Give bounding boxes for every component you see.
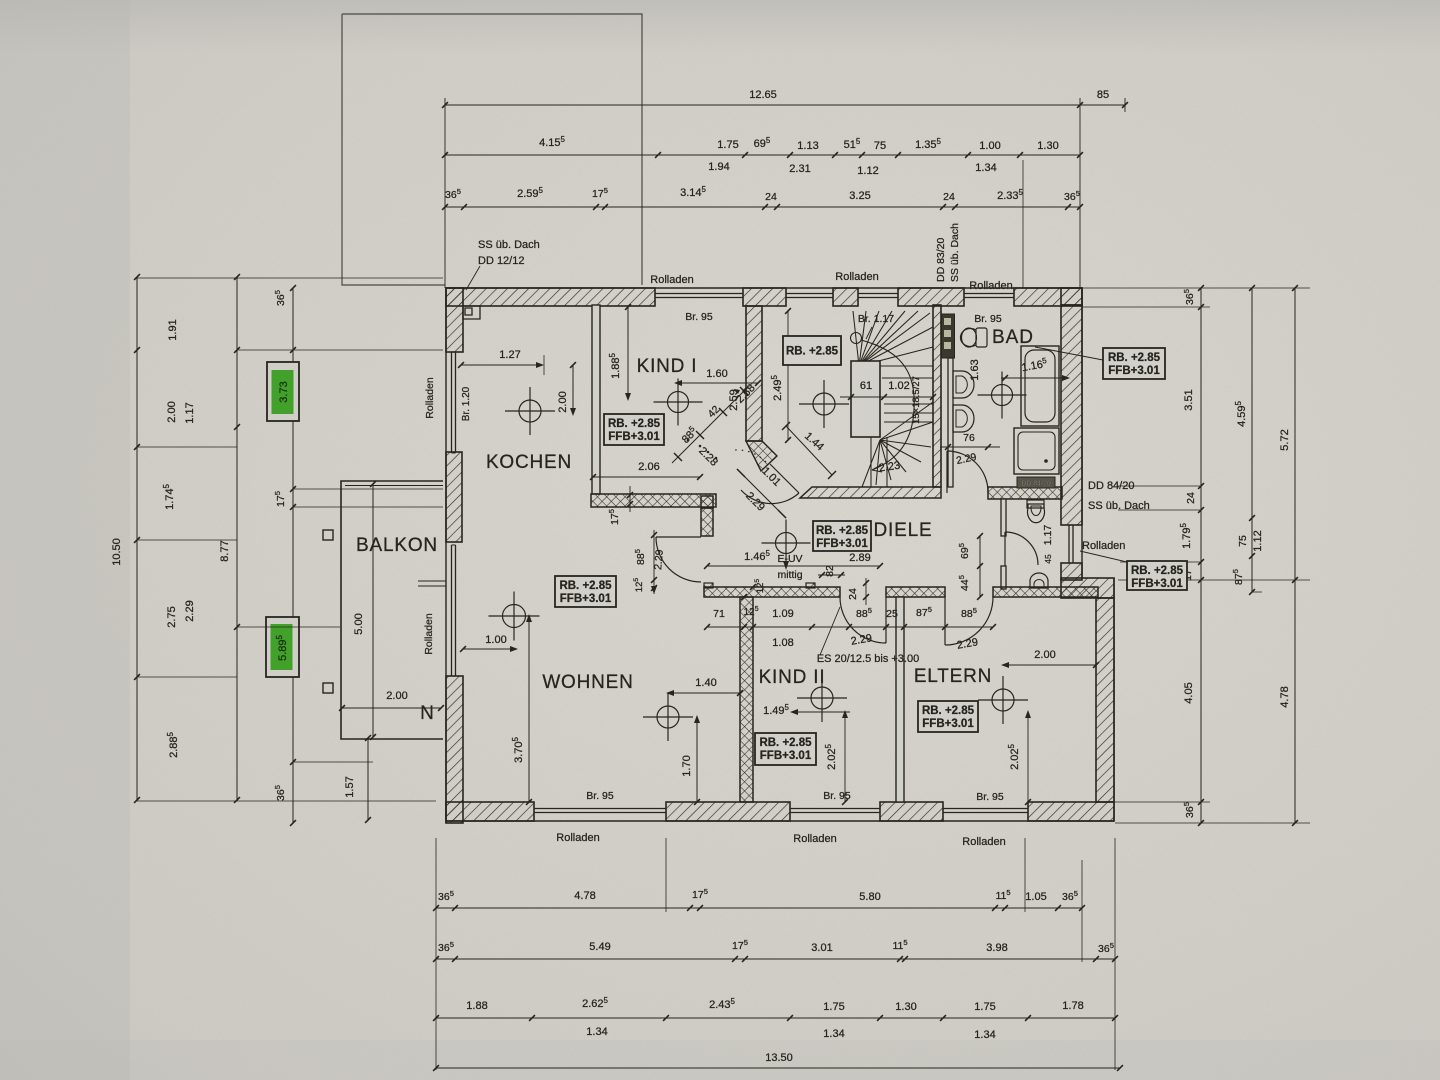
svg-text:1.63: 1.63 [969, 359, 981, 380]
svg-text:Rolladen: Rolladen [835, 271, 878, 283]
svg-text:1.30: 1.30 [1037, 140, 1058, 152]
svg-text:Rolladen: Rolladen [962, 836, 1005, 848]
svg-text:25: 25 [886, 608, 898, 620]
svg-text:3.25: 3.25 [849, 190, 870, 202]
svg-text:SS üb. Dach: SS üb. Dach [949, 223, 961, 282]
svg-text:RB. +2.85: RB. +2.85 [922, 705, 975, 717]
svg-text:1.13: 1.13 [797, 140, 818, 152]
svg-text:1.34: 1.34 [823, 1028, 844, 1040]
svg-text:1.12: 1.12 [857, 165, 878, 177]
svg-text:5.49: 5.49 [589, 941, 610, 953]
svg-text:N: N [420, 703, 434, 724]
svg-text:Br. 95: Br. 95 [976, 791, 1004, 803]
svg-text:BAD: BAD [992, 327, 1034, 348]
svg-text:24: 24 [943, 191, 955, 203]
svg-text:RB. +2.85: RB. +2.85 [786, 346, 839, 358]
svg-text:1.05: 1.05 [1025, 891, 1046, 903]
svg-text:BALKON: BALKON [356, 535, 438, 556]
svg-text:76: 76 [963, 432, 975, 444]
svg-text:1.17: 1.17 [1042, 525, 1054, 546]
svg-text:10.50: 10.50 [111, 538, 123, 566]
svg-text:12.65: 12.65 [749, 89, 777, 101]
svg-text:RB. +2.85: RB. +2.85 [1108, 352, 1161, 364]
svg-text:Rolladen: Rolladen [969, 280, 1012, 292]
svg-text:24: 24 [1185, 492, 1197, 504]
svg-text:FFB+3.01: FFB+3.01 [560, 593, 612, 605]
svg-text:DD 84/20: DD 84/20 [1021, 481, 1051, 488]
svg-text:75: 75 [1237, 535, 1249, 547]
svg-text:1.34: 1.34 [975, 162, 996, 174]
svg-text:Rolladen: Rolladen [423, 613, 435, 655]
svg-text:2.75: 2.75 [166, 606, 178, 627]
svg-text:24: 24 [847, 588, 859, 600]
svg-text:Rolladen: Rolladen [424, 377, 436, 419]
svg-text:FFB+3.01: FFB+3.01 [922, 718, 974, 730]
svg-text:FFB+3.01: FFB+3.01 [816, 538, 868, 550]
svg-text:1.70: 1.70 [681, 755, 693, 776]
svg-text:2.31: 2.31 [789, 163, 810, 175]
svg-text:Br. 95: Br. 95 [685, 311, 713, 323]
svg-text:ES 20/12.5 bis +3.00: ES 20/12.5 bis +3.00 [817, 653, 919, 665]
svg-text:1.75: 1.75 [823, 1001, 844, 1013]
svg-text:1.34: 1.34 [586, 1026, 607, 1038]
svg-text:3.01: 3.01 [811, 942, 832, 954]
svg-text:E-UV: E-UV [777, 553, 802, 565]
svg-text:1.34: 1.34 [974, 1029, 995, 1041]
svg-text:1.60: 1.60 [706, 368, 727, 380]
svg-text:Rolladen: Rolladen [650, 274, 693, 286]
svg-text:1.02: 1.02 [888, 380, 909, 392]
svg-text:1.00: 1.00 [979, 140, 1000, 152]
svg-text:DD 84/20: DD 84/20 [1088, 480, 1134, 492]
svg-text:Rolladen: Rolladen [556, 832, 599, 844]
svg-text:FFB+3.01: FFB+3.01 [608, 431, 660, 443]
svg-text:Rolladen: Rolladen [793, 833, 836, 845]
svg-text:2.89: 2.89 [849, 552, 870, 564]
svg-text:75: 75 [874, 140, 886, 152]
svg-text:WOHNEN: WOHNEN [542, 672, 633, 693]
svg-text:1.27: 1.27 [499, 349, 520, 361]
svg-text:13.50: 13.50 [765, 1052, 793, 1064]
svg-text:61: 61 [860, 380, 872, 392]
svg-text:1.17: 1.17 [184, 402, 196, 423]
svg-text:FFB+3.01: FFB+3.01 [1131, 578, 1183, 590]
svg-text:5.72: 5.72 [1279, 429, 1291, 450]
svg-text:RB. +2.85: RB. +2.85 [1131, 565, 1184, 577]
svg-text:1.30: 1.30 [895, 1001, 916, 1013]
svg-text:1.91: 1.91 [167, 319, 179, 340]
svg-text:1.75: 1.75 [974, 1001, 995, 1013]
svg-text:5.80: 5.80 [859, 891, 880, 903]
svg-text:RB. +2.85: RB. +2.85 [759, 737, 812, 749]
svg-text:1.40: 1.40 [695, 677, 716, 689]
svg-text:4.78: 4.78 [574, 890, 595, 902]
svg-text:3.73: 3.73 [278, 381, 290, 402]
svg-text:RB. +2.85: RB. +2.85 [816, 525, 869, 537]
svg-text:Br. 95: Br. 95 [974, 313, 1002, 325]
svg-text:2.00: 2.00 [166, 401, 178, 422]
svg-text:2.00: 2.00 [386, 690, 407, 702]
svg-text:1.08: 1.08 [772, 637, 793, 649]
svg-text:3.98: 3.98 [986, 942, 1007, 954]
svg-text:KIND II: KIND II [759, 667, 826, 688]
svg-text:Br. 1.17: Br. 1.17 [858, 313, 894, 325]
svg-text:ELTERN: ELTERN [914, 666, 992, 687]
svg-text:mittig: mittig [777, 569, 802, 581]
svg-text:71: 71 [713, 608, 725, 620]
svg-text:SS üb. Dach: SS üb. Dach [478, 239, 540, 251]
svg-text:FFB+3.01: FFB+3.01 [1108, 365, 1160, 377]
svg-text:45: 45 [1043, 554, 1053, 564]
svg-text:4.78: 4.78 [1279, 686, 1291, 707]
svg-text:2.06: 2.06 [638, 461, 659, 473]
svg-text:Br. 1.20: Br. 1.20 [461, 386, 472, 421]
svg-text:8.77: 8.77 [219, 540, 231, 561]
svg-text:3.51: 3.51 [1183, 389, 1195, 410]
svg-text:Br. 95: Br. 95 [586, 790, 614, 802]
svg-text:1.00: 1.00 [485, 634, 506, 646]
svg-text:DD 83/20: DD 83/20 [935, 237, 947, 282]
svg-text:1.78: 1.78 [1062, 1000, 1083, 1012]
svg-text:2.00: 2.00 [1034, 649, 1055, 661]
svg-text:4.05: 4.05 [1183, 682, 1195, 703]
svg-text:DD 12/12: DD 12/12 [478, 255, 524, 267]
svg-text:1.09: 1.09 [772, 608, 793, 620]
svg-text:2.29: 2.29 [652, 549, 666, 571]
svg-text:1.75: 1.75 [717, 139, 738, 151]
svg-text:FFB+3.01: FFB+3.01 [760, 750, 812, 762]
svg-text:1.94: 1.94 [708, 161, 729, 173]
svg-text:1.12: 1.12 [1252, 530, 1264, 551]
svg-text:RB. +2.85: RB. +2.85 [608, 418, 661, 430]
svg-text:15×18.5/27: 15×18.5/27 [911, 376, 922, 424]
svg-text:2.00: 2.00 [557, 391, 569, 412]
svg-text:24: 24 [765, 191, 777, 203]
svg-text:KIND I: KIND I [637, 356, 698, 377]
svg-text:SS üb. Dach: SS üb. Dach [1088, 500, 1150, 512]
svg-text:85: 85 [1097, 89, 1109, 101]
svg-text:KOCHEN: KOCHEN [486, 452, 572, 473]
svg-text:1.57: 1.57 [344, 776, 356, 797]
svg-text:Rolladen: Rolladen [1082, 540, 1125, 552]
svg-text:2.29: 2.29 [184, 600, 196, 621]
svg-text:5.00: 5.00 [353, 613, 365, 634]
svg-text:RB. +2.85: RB. +2.85 [559, 580, 612, 592]
svg-text:DIELE: DIELE [874, 520, 933, 541]
svg-text:1.88: 1.88 [466, 1000, 487, 1012]
